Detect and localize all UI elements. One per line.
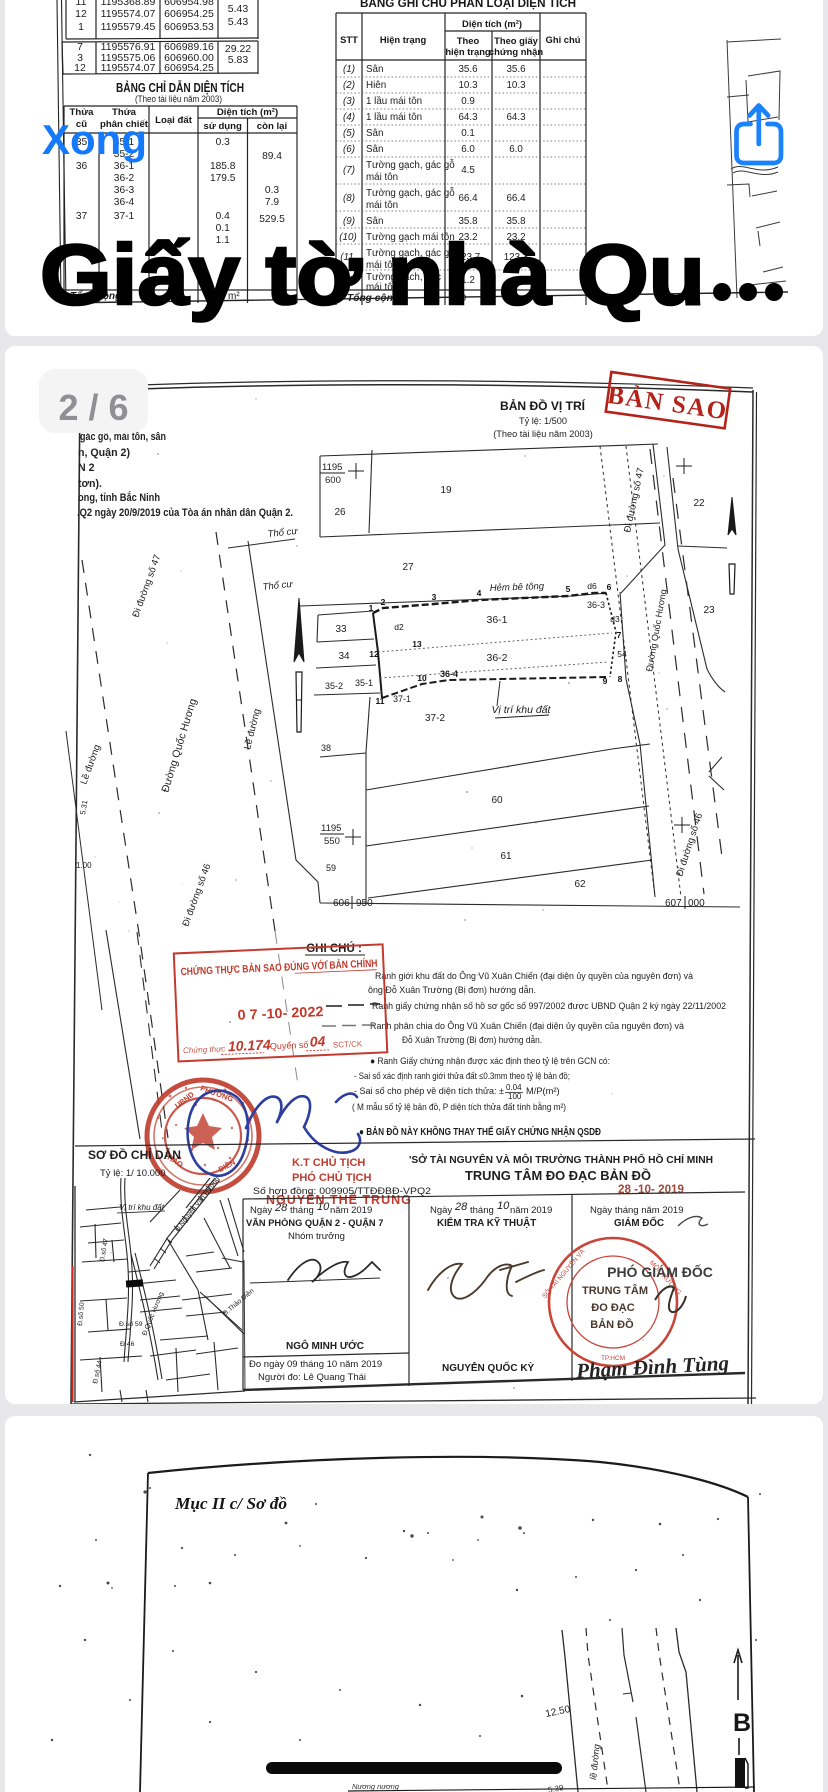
svg-text:36-3: 36-3 bbox=[114, 185, 135, 196]
svg-text:BẢN ĐỒ: BẢN ĐỒ bbox=[590, 1318, 634, 1331]
svg-text:Loại đất: Loại đất bbox=[155, 115, 193, 126]
svg-text:Đ.46: Đ.46 bbox=[120, 1341, 135, 1348]
svg-text:34: 34 bbox=[338, 651, 350, 662]
svg-text:62: 62 bbox=[574, 879, 586, 890]
svg-text:- Sai số xác định ranh giới th: - Sai số xác định ranh giới thửa đất ≤0.… bbox=[354, 1071, 570, 1081]
svg-text:mái tôn: mái tôn bbox=[366, 200, 398, 211]
svg-text:d3: d3 bbox=[610, 614, 620, 624]
svg-text:Ngày: Ngày bbox=[250, 1205, 272, 1216]
svg-text:KIỂM TRA KỸ THUẬT: KIỂM TRA KỸ THUẬT bbox=[437, 1217, 536, 1229]
svg-text:89.4: 89.4 bbox=[262, 151, 282, 162]
svg-text:ong, tỉnh Bắc Ninh: ong, tỉnh Bắc Ninh bbox=[78, 491, 160, 504]
svg-text:.Q2 ngày 20/9/2019 của Tòa án: .Q2 ngày 20/9/2019 của Tòa án nhân dân Q… bbox=[77, 507, 293, 519]
svg-text:tơn).: tơn). bbox=[78, 478, 102, 490]
svg-text:Quyển số: Quyển số bbox=[270, 1040, 309, 1052]
svg-text:(5): (5) bbox=[343, 128, 355, 139]
svg-text:529.5: 529.5 bbox=[259, 214, 285, 225]
svg-text:10: 10 bbox=[317, 1201, 330, 1213]
svg-text:'SỞ TÀI NGUYÊN VÀ MÔI TRƯỜNG T: 'SỞ TÀI NGUYÊN VÀ MÔI TRƯỜNG THÀNH PHỐ H… bbox=[409, 1152, 713, 1166]
svg-text:(3): (3) bbox=[343, 96, 355, 107]
svg-text:Vị trí khu đất: Vị trí khu đất bbox=[119, 1203, 165, 1212]
svg-text:BẢNG GHI CHÚ PHÂN LOẠI DIỆN TÍ: BẢNG GHI CHÚ PHÂN LOẠI DIỆN TÍCH bbox=[360, 0, 576, 10]
svg-text:1195: 1195 bbox=[321, 823, 341, 834]
svg-text:Ranh phân chia do Ông Vũ Xuân: Ranh phân chia do Ông Vũ Xuân Chiến (đại… bbox=[370, 1021, 685, 1031]
svg-text:1: 1 bbox=[78, 21, 84, 33]
svg-text:Tỷ lệ: 1/500: Tỷ lệ: 1/500 bbox=[519, 416, 567, 426]
svg-text:1195579.45: 1195579.45 bbox=[101, 21, 156, 33]
svg-text:606: 606 bbox=[333, 898, 350, 909]
svg-text:0.4: 0.4 bbox=[216, 211, 230, 222]
svg-text:ĐO ĐẠC: ĐO ĐẠC bbox=[591, 1302, 634, 1314]
svg-text:1: 1 bbox=[369, 603, 374, 613]
svg-text:Mục II c/ Sơ đồ: Mục II c/ Sơ đồ bbox=[174, 1494, 287, 1513]
svg-text:năm 2019: năm 2019 bbox=[330, 1205, 372, 1216]
svg-text:- Sai số cho phép về diện tích: - Sai số cho phép về diện tích thửa: ± bbox=[354, 1086, 504, 1096]
svg-text:● Ranh Giấy chứng nhận được xá: ● Ranh Giấy chứng nhận được xác định the… bbox=[370, 1056, 610, 1066]
svg-text:n, Quận 2): n, Quận 2) bbox=[78, 447, 130, 459]
svg-text:Nhóm trưởng: Nhóm trưởng bbox=[288, 1231, 345, 1242]
svg-text:PHÓ GIÁM ĐỐC: PHÓ GIÁM ĐỐC bbox=[607, 1263, 713, 1280]
svg-text:5.83: 5.83 bbox=[228, 54, 249, 66]
svg-text:0.3: 0.3 bbox=[265, 185, 279, 196]
svg-text:4: 4 bbox=[477, 588, 482, 598]
svg-text:GHI CHÚ :: GHI CHÚ : bbox=[306, 942, 362, 955]
svg-text:1 lầu mái tôn: 1 lầu mái tôn bbox=[366, 112, 422, 123]
svg-text:7: 7 bbox=[617, 630, 622, 640]
svg-text:12: 12 bbox=[75, 8, 87, 20]
svg-text:● BẢN ĐỒ NÀY KHÔNG THAY THẾ GI: ● BẢN ĐỒ NÀY KHÔNG THAY THẾ GIẤY CHỨNG N… bbox=[359, 1125, 601, 1138]
svg-text:0.04: 0.04 bbox=[506, 1083, 522, 1092]
svg-text:5: 5 bbox=[566, 584, 571, 594]
svg-text:10.3: 10.3 bbox=[458, 80, 478, 91]
svg-text:36-4: 36-4 bbox=[440, 669, 458, 679]
svg-text:Đỗ Xuân Trường (Bị đơn) hướng: Đỗ Xuân Trường (Bị đơn) hướng dẫn. bbox=[402, 1035, 542, 1045]
svg-text:Theo giấy: Theo giấy bbox=[494, 35, 539, 46]
svg-text:11: 11 bbox=[76, 0, 87, 8]
svg-text:64.3: 64.3 bbox=[506, 112, 526, 123]
svg-text:606954.25: 606954.25 bbox=[164, 8, 214, 20]
svg-text:64.3: 64.3 bbox=[458, 112, 478, 123]
svg-text:10: 10 bbox=[497, 1200, 510, 1212]
svg-text:SƠ ĐỒ CHỈ DẪN: SƠ ĐỒ CHỈ DẪN bbox=[88, 1147, 181, 1162]
svg-text:TRUNG TÂM: TRUNG TÂM bbox=[582, 1284, 648, 1297]
svg-text:100: 100 bbox=[508, 1092, 522, 1101]
svg-text:Đ.số 59: Đ.số 59 bbox=[119, 1319, 143, 1328]
svg-text:mái tôn: mái tôn bbox=[366, 172, 398, 183]
svg-text:37-2: 37-2 bbox=[425, 713, 445, 724]
svg-text:Ranh giới khu đất do Ông Vũ Xu: Ranh giới khu đất do Ông Vũ Xuân Chiến (… bbox=[375, 971, 694, 981]
svg-text:66.4: 66.4 bbox=[506, 193, 526, 204]
svg-text:35-2: 35-2 bbox=[325, 681, 343, 691]
svg-text:606954.25: 606954.25 bbox=[164, 62, 214, 74]
svg-text:Nương nương: Nương nương bbox=[352, 1782, 400, 1791]
svg-text:SCT/CK: SCT/CK bbox=[333, 1039, 363, 1049]
svg-text:BẢNG CHỈ DẪN DIỆN TÍCH: BẢNG CHỈ DẪN DIỆN TÍCH bbox=[116, 80, 244, 95]
svg-text:7.9: 7.9 bbox=[265, 197, 279, 208]
svg-text:26: 26 bbox=[334, 507, 346, 518]
svg-text:66.4: 66.4 bbox=[458, 193, 478, 204]
svg-text:hiện trạng: hiện trạng bbox=[445, 46, 491, 57]
svg-text:35.8: 35.8 bbox=[458, 216, 478, 227]
svg-text:(Theo tài liệu năm 2003): (Theo tài liệu năm 2003) bbox=[135, 94, 222, 104]
svg-text:5.31: 5.31 bbox=[78, 799, 89, 815]
svg-text:N 2: N 2 bbox=[78, 462, 95, 474]
svg-text:1195: 1195 bbox=[322, 462, 342, 473]
svg-text:5.43: 5.43 bbox=[228, 16, 249, 28]
svg-text:BẢN SAO: BẢN SAO bbox=[606, 381, 730, 426]
svg-text:0.1: 0.1 bbox=[461, 128, 475, 139]
svg-text:550: 550 bbox=[324, 836, 340, 847]
svg-text:Đường Quốc Hương: Đường Quốc Hương bbox=[159, 697, 199, 794]
svg-text:33: 33 bbox=[335, 624, 347, 635]
svg-text:10.174: 10.174 bbox=[228, 1036, 272, 1054]
svg-text:35.8: 35.8 bbox=[506, 216, 526, 227]
svg-text:4.5: 4.5 bbox=[461, 165, 475, 176]
svg-text:còn lại: còn lại bbox=[257, 121, 287, 132]
svg-text:Xong: Xong bbox=[42, 116, 147, 163]
svg-text:lề đường: lề đường bbox=[588, 1744, 602, 1781]
svg-text:179.5: 179.5 bbox=[210, 173, 236, 184]
svg-text:Lề đường: Lề đường bbox=[78, 743, 103, 786]
svg-text:Số hợp đồng: 009905/TTĐĐBĐ-VPQ: Số hợp đồng: 009905/TTĐĐBĐ-VPQ2 bbox=[253, 1186, 431, 1197]
svg-text:Chứng thực: Chứng thực bbox=[183, 1044, 226, 1055]
svg-text:27: 27 bbox=[402, 562, 414, 573]
svg-text:BẢN ĐỒ VỊ TRÍ: BẢN ĐỒ VỊ TRÍ bbox=[500, 399, 586, 413]
svg-text:d6: d6 bbox=[587, 581, 597, 591]
svg-text:(1): (1) bbox=[343, 64, 355, 75]
svg-text:Đ.số 50: Đ.số 50 bbox=[75, 1302, 86, 1326]
svg-text:35-1: 35-1 bbox=[355, 678, 373, 688]
svg-text:11: 11 bbox=[376, 696, 385, 706]
svg-text:Đ.Nguyễn Văn Hưởng: Đ.Nguyễn Văn Hưởng bbox=[172, 1174, 221, 1233]
svg-text:13: 13 bbox=[412, 639, 422, 649]
svg-text:36-1: 36-1 bbox=[486, 614, 507, 626]
svg-text:PHÓ CHỦ TỊCH: PHÓ CHỦ TỊCH bbox=[292, 1171, 372, 1184]
svg-text:Hiện trạng: Hiện trạng bbox=[380, 34, 427, 45]
svg-text:( M mẫu số tỷ lệ bản đồ, P diệ: ( M mẫu số tỷ lệ bản đồ, P diện tích thử… bbox=[352, 1102, 566, 1112]
svg-text:000: 000 bbox=[688, 898, 705, 909]
svg-text:61: 61 bbox=[500, 851, 512, 862]
svg-text:36-2: 36-2 bbox=[114, 173, 135, 184]
svg-text:2: 2 bbox=[381, 597, 386, 607]
svg-text:36-2: 36-2 bbox=[486, 652, 507, 664]
svg-text:606953.53: 606953.53 bbox=[164, 21, 214, 33]
svg-text:Thổ cư: Thổ cư bbox=[267, 526, 299, 540]
svg-text:Lề đường: Lề đường bbox=[242, 708, 263, 751]
svg-text:Đo ngày 09 tháng 10 năm 2019: Đo ngày 09 tháng 10 năm 2019 bbox=[249, 1359, 382, 1370]
svg-text:22: 22 bbox=[693, 498, 705, 509]
svg-text:(9): (9) bbox=[343, 216, 355, 227]
svg-text:950: 950 bbox=[356, 898, 373, 909]
svg-text:(6): (6) bbox=[343, 144, 355, 155]
svg-text:GIÁM ĐỐC: GIÁM ĐỐC bbox=[614, 1217, 664, 1229]
svg-text:Đi đường số 47: Đi đường số 47 bbox=[130, 553, 163, 619]
svg-text:12: 12 bbox=[74, 62, 86, 74]
svg-text:600: 600 bbox=[325, 475, 341, 486]
svg-text:185.8: 185.8 bbox=[210, 161, 236, 172]
svg-text:Tỷ lệ: 1/ 10.000: Tỷ lệ: 1/ 10.000 bbox=[100, 1168, 165, 1179]
svg-text:6.0: 6.0 bbox=[509, 144, 523, 155]
svg-text:Ghi chú: Ghi chú bbox=[546, 34, 581, 45]
svg-text:6: 6 bbox=[607, 582, 612, 592]
svg-text:d2: d2 bbox=[394, 622, 404, 632]
svg-text:12.50: 12.50 bbox=[544, 1704, 571, 1720]
svg-text:Sân: Sân bbox=[366, 216, 383, 227]
svg-text:35.6: 35.6 bbox=[506, 64, 526, 75]
svg-text:Đi đường số 46: Đi đường số 46 bbox=[180, 862, 213, 928]
svg-text:Ranh giấy chứng nhận số hồ sơ: Ranh giấy chứng nhận số hồ sơ gốc số 997… bbox=[372, 1001, 726, 1011]
svg-text:Sân: Sân bbox=[366, 128, 383, 139]
svg-text:60: 60 bbox=[491, 795, 503, 806]
svg-text:37-1: 37-1 bbox=[114, 211, 135, 222]
svg-text:28: 28 bbox=[454, 1201, 468, 1213]
svg-text:Diện tích (m²): Diện tích (m²) bbox=[217, 107, 278, 118]
svg-text:Tường gạch, gác gỗ: Tường gạch, gác gỗ bbox=[366, 188, 455, 199]
svg-text:VĂN PHÒNG QUẬN 2 - QUẬN 7: VĂN PHÒNG QUẬN 2 - QUẬN 7 bbox=[246, 1217, 383, 1228]
svg-text:ông Đỗ Xuân Trường (Bị đơn) hư: ông Đỗ Xuân Trường (Bị đơn) hướng dẫn. bbox=[368, 985, 536, 995]
svg-text:8: 8 bbox=[618, 674, 623, 684]
svg-text:Ngày tháng năm 201: Ngày tháng năm 2019 bbox=[590, 1205, 683, 1216]
svg-text:Hiên: Hiên bbox=[366, 80, 386, 91]
svg-text:Sân: Sân bbox=[366, 64, 383, 75]
svg-text:Đ.số 47: Đ.số 47 bbox=[97, 1237, 110, 1262]
svg-text:Đ.Thảo Điền: Đ.Thảo Điền bbox=[221, 1286, 256, 1318]
svg-text:M/P(m²): M/P(m²) bbox=[526, 1086, 560, 1096]
svg-text:(4): (4) bbox=[343, 112, 355, 123]
svg-text:2 / 6: 2 / 6 bbox=[58, 387, 128, 428]
svg-text:Đường Quốc Hương: Đường Quốc Hương bbox=[644, 588, 668, 672]
svg-text:STT: STT bbox=[340, 34, 358, 45]
svg-text:3: 3 bbox=[432, 592, 437, 602]
svg-text:1195368.89: 1195368.89 bbox=[101, 0, 156, 8]
svg-text:36-3: 36-3 bbox=[587, 600, 605, 610]
svg-text:10.3: 10.3 bbox=[506, 80, 526, 91]
svg-text:6.0: 6.0 bbox=[461, 144, 475, 155]
svg-text:Hẻm bê tông: Hẻm bê tông bbox=[490, 581, 545, 594]
svg-text:Vị trí khu đất: Vị trí khu đất bbox=[492, 704, 552, 716]
svg-text:Thổ cư: Thổ cư bbox=[262, 579, 294, 593]
svg-text:38: 38 bbox=[321, 743, 331, 753]
svg-text:(2): (2) bbox=[343, 80, 355, 91]
svg-text:NGUYỄN QUỐC KỲ: NGUYỄN QUỐC KỲ bbox=[442, 1360, 535, 1374]
svg-text:59: 59 bbox=[326, 863, 336, 873]
svg-text:0.9: 0.9 bbox=[461, 96, 475, 107]
svg-text:607: 607 bbox=[665, 898, 682, 909]
svg-text:10: 10 bbox=[417, 673, 427, 683]
svg-text:tháng: tháng bbox=[470, 1205, 494, 1216]
svg-text:Sân: Sân bbox=[366, 144, 383, 155]
svg-text:1195574.07: 1195574.07 bbox=[101, 8, 156, 20]
svg-text:1.00: 1.00 bbox=[76, 861, 92, 870]
svg-text:23: 23 bbox=[703, 605, 715, 616]
svg-text:Diện tích (m²): Diện tích (m²) bbox=[462, 18, 522, 29]
svg-text:9: 9 bbox=[603, 676, 608, 686]
svg-text:37-1: 37-1 bbox=[393, 694, 411, 704]
svg-text:28: 28 bbox=[274, 1202, 288, 1214]
svg-text:sử dụng: sử dụng bbox=[204, 121, 243, 132]
svg-text:tháng: tháng bbox=[290, 1205, 314, 1216]
svg-text:5.39: 5.39 bbox=[547, 1783, 564, 1792]
svg-text:(7): (7) bbox=[343, 165, 355, 176]
svg-text:Phạm Đình Tùng: Phạm Đình Tùng bbox=[575, 1351, 730, 1383]
svg-text:Tường gạch, gác gỗ: Tường gạch, gác gỗ bbox=[366, 160, 455, 171]
svg-text:TRUNG TÂM ĐO ĐẠC BẢN ĐỒ: TRUNG TÂM ĐO ĐẠC BẢN ĐỒ bbox=[465, 1168, 651, 1183]
svg-text:chứng nhận: chứng nhận bbox=[489, 46, 543, 57]
svg-text:19: 19 bbox=[440, 485, 452, 496]
svg-text:35.6: 35.6 bbox=[458, 64, 478, 75]
svg-text:(8): (8) bbox=[343, 193, 355, 204]
svg-text:Người đo: Lê Quang Thái: Người đo: Lê Quang Thái bbox=[258, 1372, 366, 1383]
svg-text:04: 04 bbox=[309, 1033, 325, 1050]
svg-text:(Theo tài liệu năm 2003): (Theo tài liệu năm 2003) bbox=[493, 429, 593, 439]
svg-text:5.43: 5.43 bbox=[228, 3, 249, 15]
svg-text:Ngày: Ngày bbox=[430, 1205, 452, 1216]
svg-text:B: B bbox=[733, 1709, 751, 1737]
svg-text:37: 37 bbox=[76, 211, 88, 222]
svg-text:12: 12 bbox=[369, 649, 379, 659]
svg-text:1195574.07: 1195574.07 bbox=[101, 62, 156, 74]
svg-text:NGÔ MINH ƯỚC: NGÔ MINH ƯỚC bbox=[286, 1339, 364, 1352]
svg-text:0 7 -10- 2022: 0 7 -10- 2022 bbox=[237, 1003, 324, 1023]
svg-text:1 lầu mái tôn: 1 lầu mái tôn bbox=[366, 96, 422, 107]
svg-text:36-4: 36-4 bbox=[114, 197, 135, 208]
svg-text:năm 2019: năm 2019 bbox=[510, 1205, 552, 1216]
svg-text:SỞ TÀI NGUYÊN VÀ: SỞ TÀI NGUYÊN VÀ bbox=[540, 1246, 587, 1300]
svg-text:K.T CHỦ TỊCH: K.T CHỦ TỊCH bbox=[292, 1156, 365, 1169]
svg-text:Theo: Theo bbox=[457, 35, 480, 46]
svg-text:606954.98: 606954.98 bbox=[164, 0, 214, 8]
svg-text:Giấy tờ nhà Qu: Giấy tờ nhà Qu bbox=[40, 228, 705, 323]
svg-text:0.3: 0.3 bbox=[216, 137, 230, 148]
